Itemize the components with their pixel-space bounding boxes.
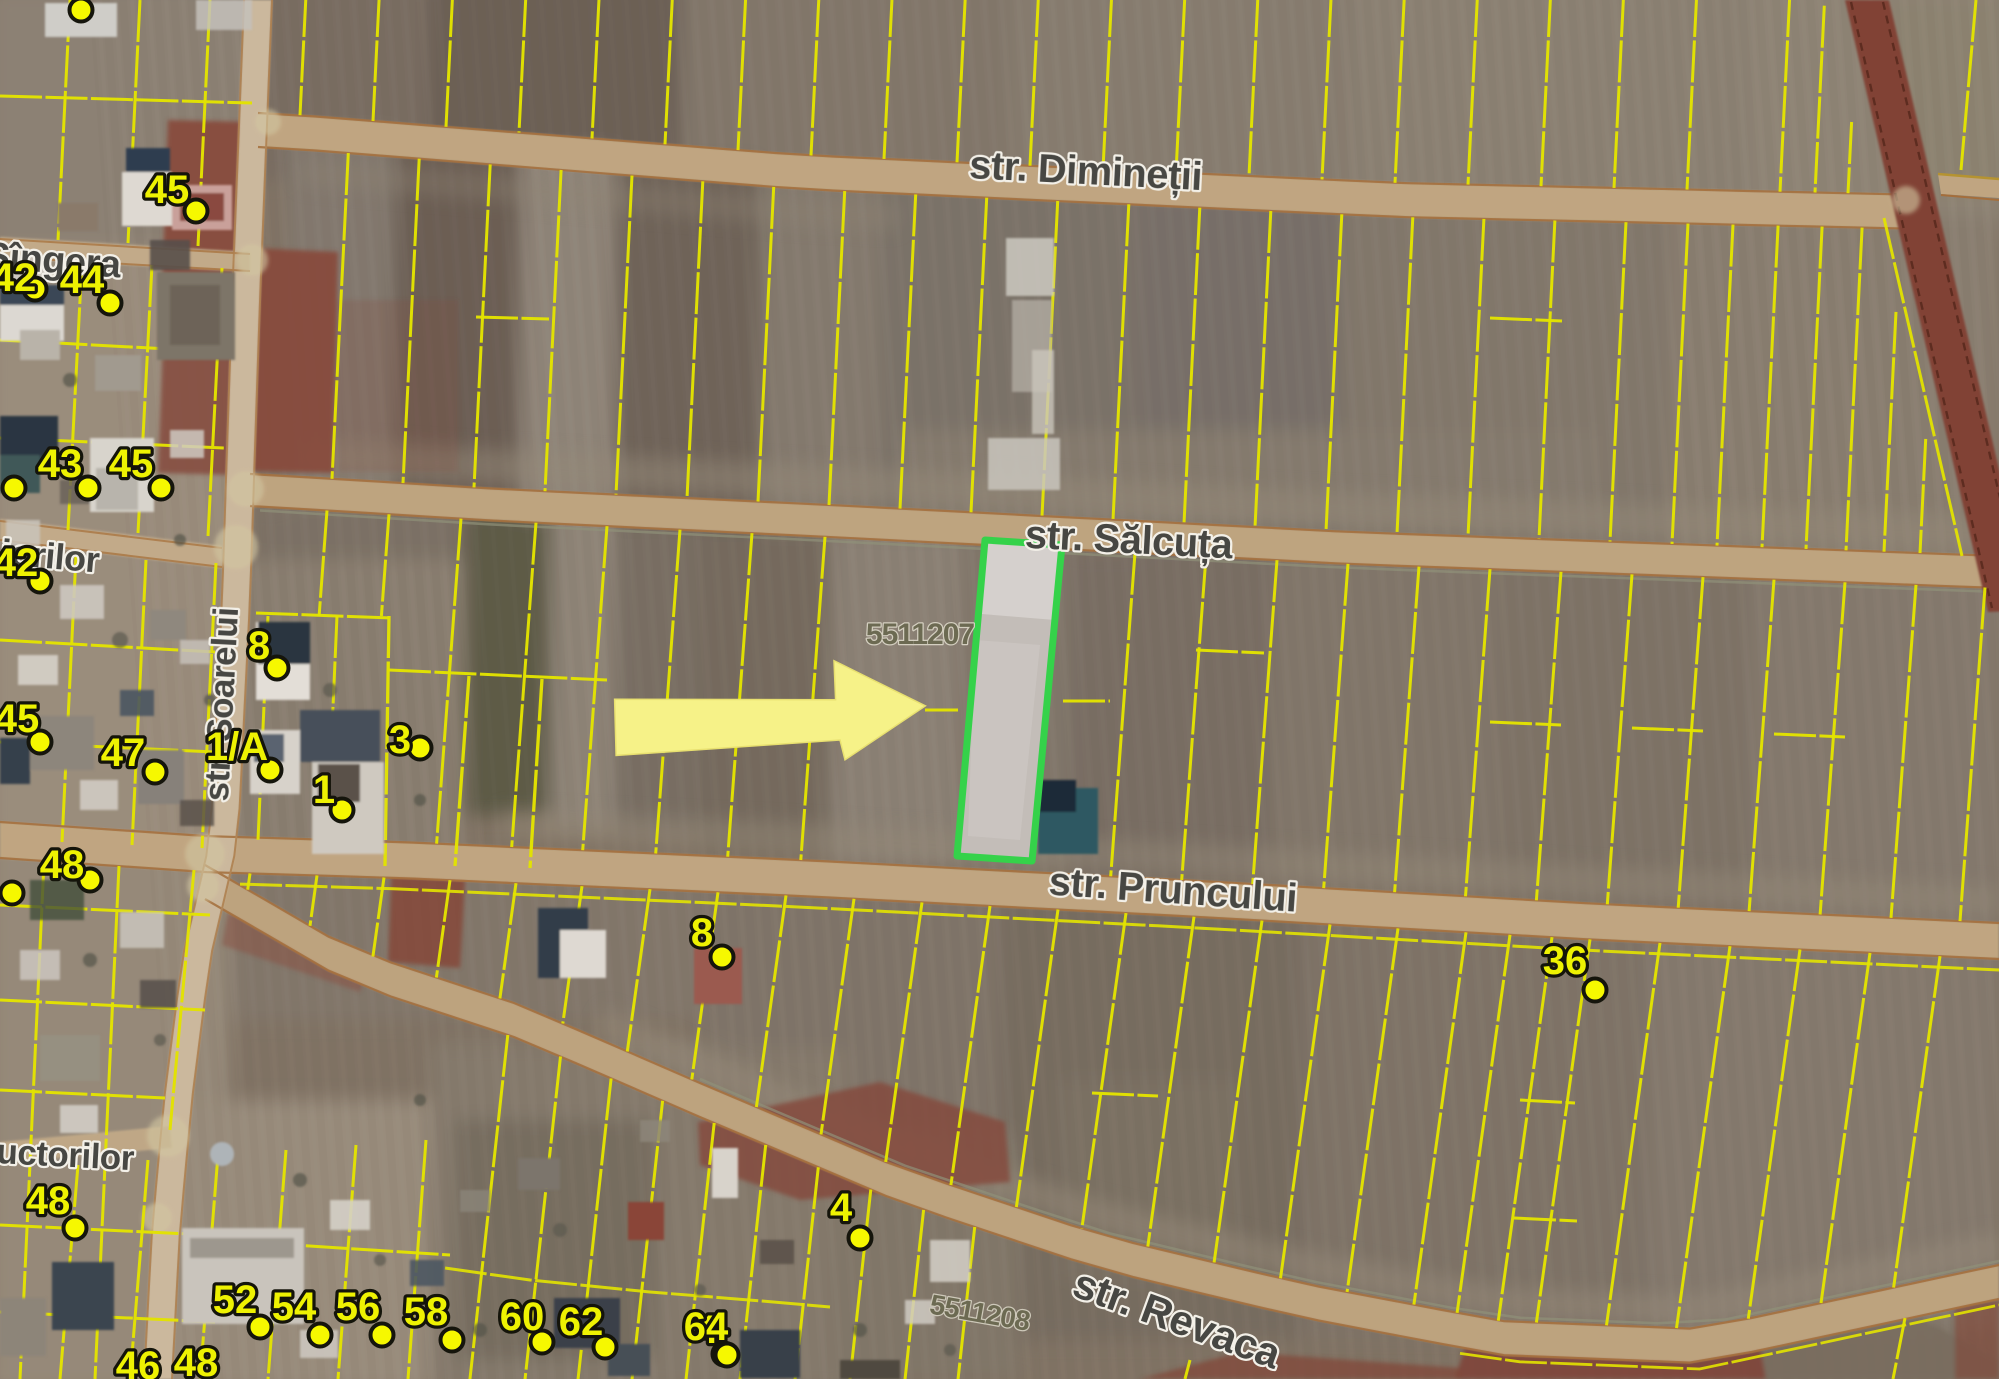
svg-text:8: 8	[248, 624, 270, 668]
svg-text:45: 45	[0, 697, 39, 741]
svg-text:3: 3	[389, 718, 411, 762]
svg-text:48: 48	[174, 1341, 219, 1379]
svg-text:1/A: 1/A	[206, 725, 268, 769]
svg-text:4: 4	[830, 1186, 853, 1230]
svg-text:5511207: 5511207	[866, 618, 974, 651]
svg-text:45: 45	[109, 442, 154, 486]
svg-text:54: 54	[272, 1285, 317, 1329]
svg-text:58: 58	[404, 1290, 449, 1334]
svg-text:46: 46	[116, 1344, 161, 1379]
svg-text:1: 1	[313, 768, 335, 812]
svg-text:48: 48	[40, 843, 85, 887]
svg-text:43: 43	[38, 442, 83, 486]
svg-text:8: 8	[691, 911, 713, 955]
svg-text:48: 48	[26, 1179, 71, 1223]
svg-text:64: 64	[684, 1305, 729, 1349]
svg-text:45: 45	[145, 168, 190, 212]
svg-text:60: 60	[500, 1295, 545, 1339]
svg-text:62: 62	[559, 1300, 604, 1344]
svg-text:uctorilor: uctorilor	[0, 1132, 136, 1178]
svg-text:44: 44	[60, 258, 105, 302]
svg-text:47: 47	[101, 731, 146, 775]
svg-text:36: 36	[1543, 939, 1588, 983]
svg-text:42: 42	[0, 256, 36, 300]
svg-text:56: 56	[336, 1285, 381, 1329]
svg-text:42: 42	[0, 541, 38, 585]
svg-text:52: 52	[213, 1278, 258, 1322]
